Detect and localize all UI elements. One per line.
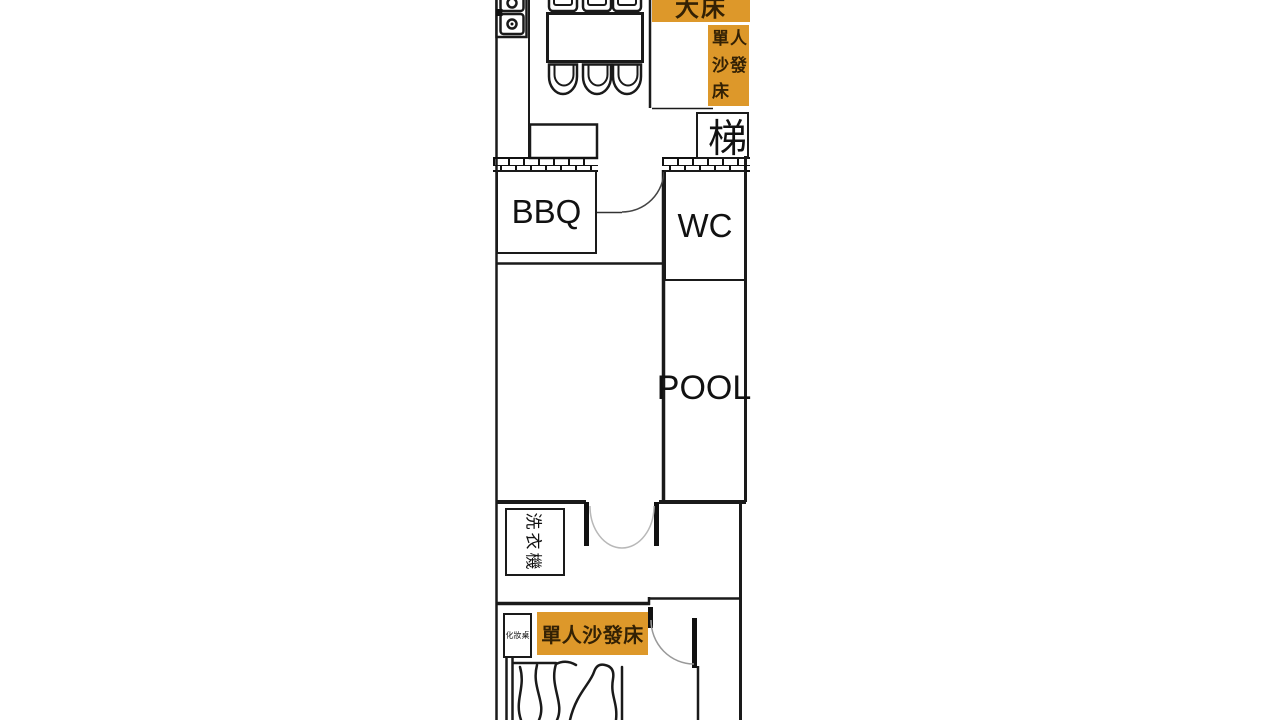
washing-machine-label: 洗衣機 [523, 512, 548, 572]
bed-sketch [507, 658, 623, 720]
wc-room-label: WC [678, 207, 733, 245]
single-sofa-bed-label-lower: 單人沙發床 [537, 612, 648, 655]
bbq-room: BBQ [496, 170, 597, 254]
makeup-table-label: 化妝桌 [506, 630, 530, 641]
dining-chair [549, 65, 641, 95]
dining-set [548, 0, 643, 94]
single-sofa-bed-label-upper: 單人沙發床 [708, 25, 749, 106]
washing-machine-box: 洗衣機 [505, 508, 565, 576]
door-swing-bedroom [648, 607, 697, 668]
stairs-box: 梯 [696, 112, 749, 159]
pool-area-label: POOL [659, 369, 749, 407]
bbq-room-label: BBQ [512, 193, 582, 231]
pool-text: POOL [657, 369, 751, 408]
wc-room: WC [664, 170, 746, 281]
stairs-label: 梯 [708, 108, 747, 164]
double-bed-text: 大床 [675, 0, 727, 10]
stove [496, 0, 527, 37]
kitchen-counter [530, 125, 597, 159]
french-doors [584, 502, 659, 548]
dining-chair [549, 0, 641, 11]
floor-plan: BBQ WC 梯 洗衣機 化妝桌 POOL 大床 單人沙發床 單人沙發床 [0, 0, 1280, 720]
door-swing-bbq [596, 170, 664, 213]
makeup-table-box: 化妝桌 [503, 613, 532, 658]
dining-table [548, 14, 643, 62]
double-bed-label: 大床 [652, 0, 750, 22]
single-sofa-bed-text: 單人沙發床 [541, 619, 644, 648]
